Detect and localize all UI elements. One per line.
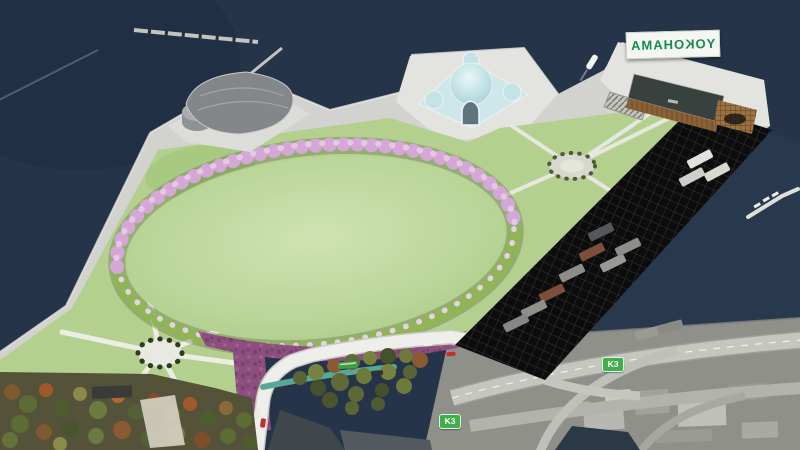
- building-rooftop-sign: YOKOHAMA: [626, 30, 721, 59]
- car-red-right: [446, 352, 455, 357]
- route-shield-k3-lower: K3: [439, 414, 461, 429]
- park-building-roof: [92, 385, 132, 398]
- van-white: [423, 342, 432, 347]
- circular-plaza-east: [549, 153, 595, 179]
- route-shield-k3-upper: K3: [602, 357, 624, 372]
- render-canvas: [0, 0, 800, 450]
- arched-entrance: [462, 101, 479, 125]
- oval-skylight: [724, 114, 746, 125]
- small-dome-left: [425, 91, 443, 109]
- aerial-site-render: YOKOHAMA K3 K3: [0, 0, 800, 450]
- central-dome: [450, 63, 492, 105]
- small-dome-right: [503, 83, 521, 101]
- circular-plaza-west: [138, 339, 182, 367]
- car-dark: [371, 370, 383, 376]
- plaza-east-center: [560, 160, 584, 173]
- sign-text: YOKOHAMA: [630, 36, 716, 53]
